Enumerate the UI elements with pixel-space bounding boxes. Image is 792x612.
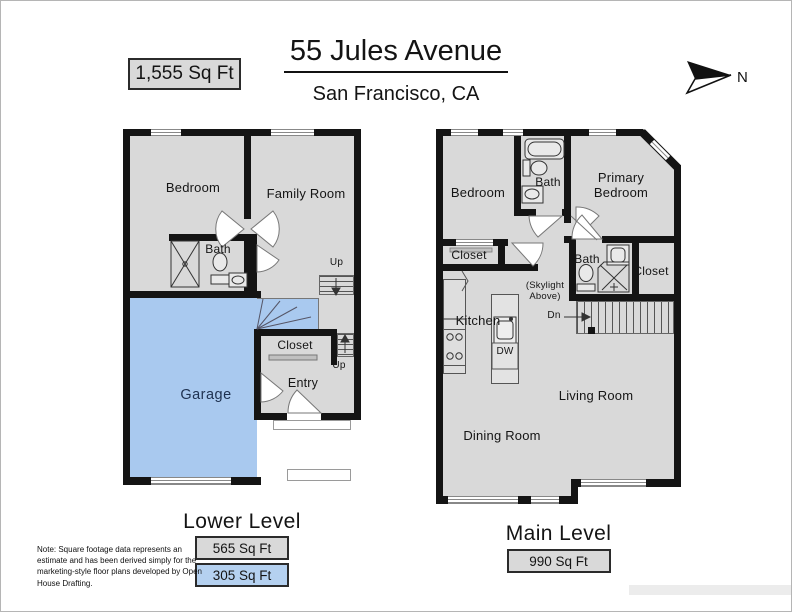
stair-direction-arrows <box>332 278 349 353</box>
room-label-kitchen: Kitchen <box>444 314 512 329</box>
watermark <box>629 585 791 595</box>
disclaimer-note: Note: Square footage data represents an … <box>37 544 209 589</box>
north-arrow-outline <box>687 75 731 93</box>
room-label-entry: Entry <box>271 376 335 390</box>
bathtub-icon <box>525 139 564 159</box>
shower-icon <box>171 241 199 287</box>
bath-door-swing <box>257 245 279 272</box>
room-label-bedroom: Bedroom <box>438 186 518 201</box>
north-label: N <box>737 69 748 86</box>
stairs-label-up-lower: Up <box>321 360 357 371</box>
room-label-garage: Garage <box>156 387 256 403</box>
room-label-primary-bath: Bath <box>567 253 607 266</box>
page-title: 55 Jules Avenue <box>1 35 791 73</box>
main-level-plan: Bedroom Bath Primary Bedroom Closet Bath… <box>436 129 681 511</box>
hall-bath-door-swing <box>529 216 562 237</box>
lower-area-badge: 565 Sq Ft <box>195 536 289 560</box>
stair-newel <box>588 327 595 334</box>
primary-toilet-icon <box>577 265 595 292</box>
garage-area-badge: 305 Sq Ft <box>195 563 289 587</box>
winder-stairs <box>257 299 311 329</box>
room-label-closet: Closet <box>265 339 325 352</box>
room-label-hall-bath: Bath <box>528 176 568 189</box>
main-level-title: Main Level <box>436 522 681 546</box>
room-label-family-room: Family Room <box>266 187 346 202</box>
lower-level-title: Lower Level <box>123 510 361 534</box>
floor-plan-sheet: 1,555 Sq Ft 55 Jules Avenue San Francisc… <box>0 0 792 612</box>
kitchen-bifold-door <box>462 271 468 291</box>
main-level-badges: 990 Sq Ft <box>436 549 681 573</box>
room-label-primary-closet: Closet <box>628 265 674 278</box>
room-label-closet: Closet <box>442 249 496 262</box>
main-area-badge: 990 Sq Ft <box>507 549 611 573</box>
room-label-bath: Bath <box>198 243 238 256</box>
closet-shelf <box>269 355 317 360</box>
label-dishwasher: DW <box>492 346 518 357</box>
room-label-living-room: Living Room <box>556 389 636 404</box>
family-room-door-swing <box>251 211 279 247</box>
room-label-dining-room: Dining Room <box>462 429 542 444</box>
room-label-primary-bedroom: Primary Bedroom <box>579 171 663 200</box>
front-door-swing <box>288 390 321 413</box>
bedroom-door-swing <box>512 243 543 266</box>
stairs-label-up-upper: Up <box>319 257 354 268</box>
stairs-down-arrow <box>564 313 590 321</box>
sink-icon <box>229 273 247 287</box>
room-label-bedroom: Bedroom <box>143 181 243 196</box>
lower-level-plan: Bedroom Family Room Bath Up Closet Entry… <box>123 129 361 489</box>
stairs-label-down: Dn <box>543 310 565 321</box>
north-arrow-icon: N <box>681 51 759 101</box>
label-skylight: (Skylight Above) <box>516 281 574 302</box>
corner-shower-icon <box>598 262 629 292</box>
toilet-icon <box>523 160 547 176</box>
toilet-icon <box>211 253 229 284</box>
page-subtitle: San Francisco, CA <box>1 83 791 106</box>
